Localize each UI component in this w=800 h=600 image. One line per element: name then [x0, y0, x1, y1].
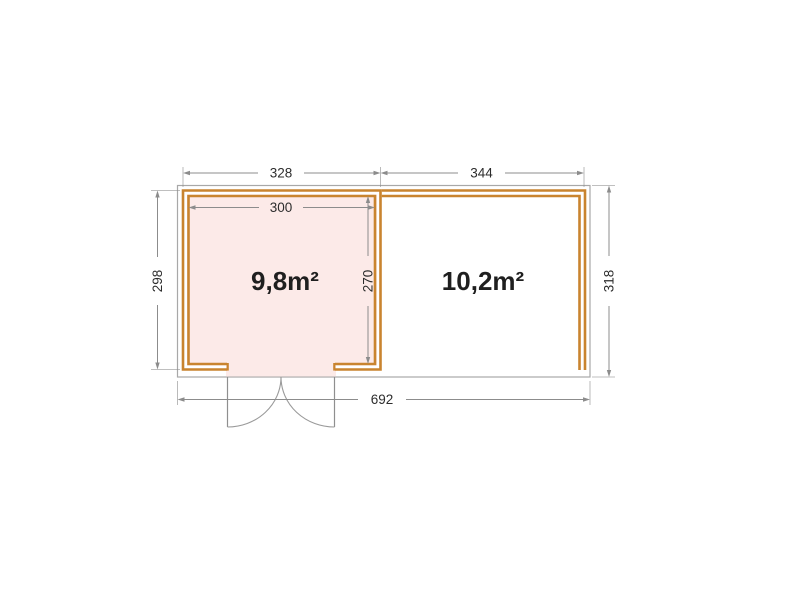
dimension-value: 344 — [470, 166, 493, 181]
dimension-total-width: 692 — [178, 381, 591, 407]
dimension-right-outer-depth: 318 — [592, 186, 617, 378]
arrow-up-icon — [607, 186, 611, 193]
door-swing-arc-left — [228, 377, 282, 427]
dimension-value: 300 — [270, 200, 293, 215]
double-door — [228, 377, 335, 427]
floorplan-drawing: 328 344 300 298 — [0, 0, 800, 600]
right-room-area-label: 10,2m² — [442, 266, 525, 296]
arrow-down-icon — [155, 363, 159, 370]
arrow-left-icon — [183, 171, 190, 175]
arrow-right-icon — [583, 397, 590, 401]
dimension-value: 692 — [371, 392, 394, 407]
arrow-up-icon — [155, 191, 159, 198]
dimension-right-outer-width: 344 — [381, 166, 585, 188]
arrow-right-icon — [577, 171, 584, 175]
dimension-value: 298 — [150, 270, 165, 293]
door-swing-arc-right — [281, 377, 335, 427]
arrow-left-icon — [178, 397, 185, 401]
dimension-value: 318 — [602, 270, 617, 293]
floorplan-canvas: 328 344 300 298 — [0, 0, 800, 600]
left-room-area-label: 9,8m² — [251, 266, 319, 296]
arrow-right-icon — [374, 171, 381, 175]
arrow-left-icon — [381, 171, 388, 175]
arrow-down-icon — [607, 370, 611, 377]
dimension-value: 328 — [270, 166, 293, 181]
dimension-left-outer-width: 328 — [183, 166, 381, 188]
dimension-value: 270 — [361, 270, 376, 293]
dimension-left-outer-depth: 298 — [150, 191, 180, 370]
